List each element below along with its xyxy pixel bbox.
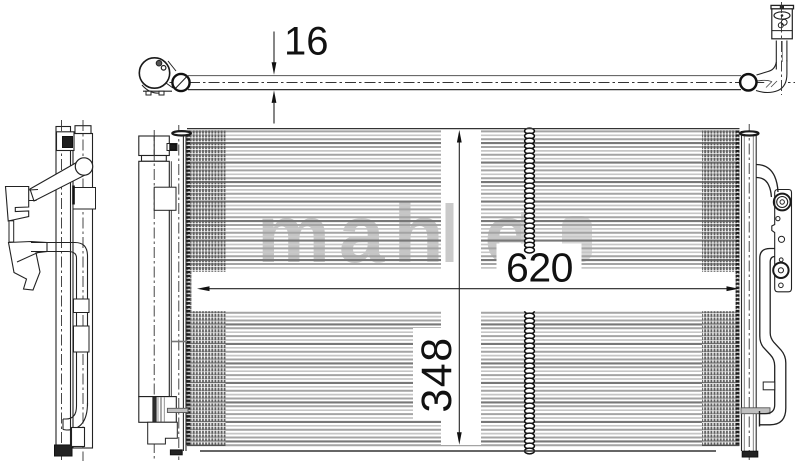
svg-text:348: 348 [413, 336, 461, 412]
svg-text:16: 16 [284, 20, 329, 64]
svg-text:620: 620 [506, 245, 573, 291]
